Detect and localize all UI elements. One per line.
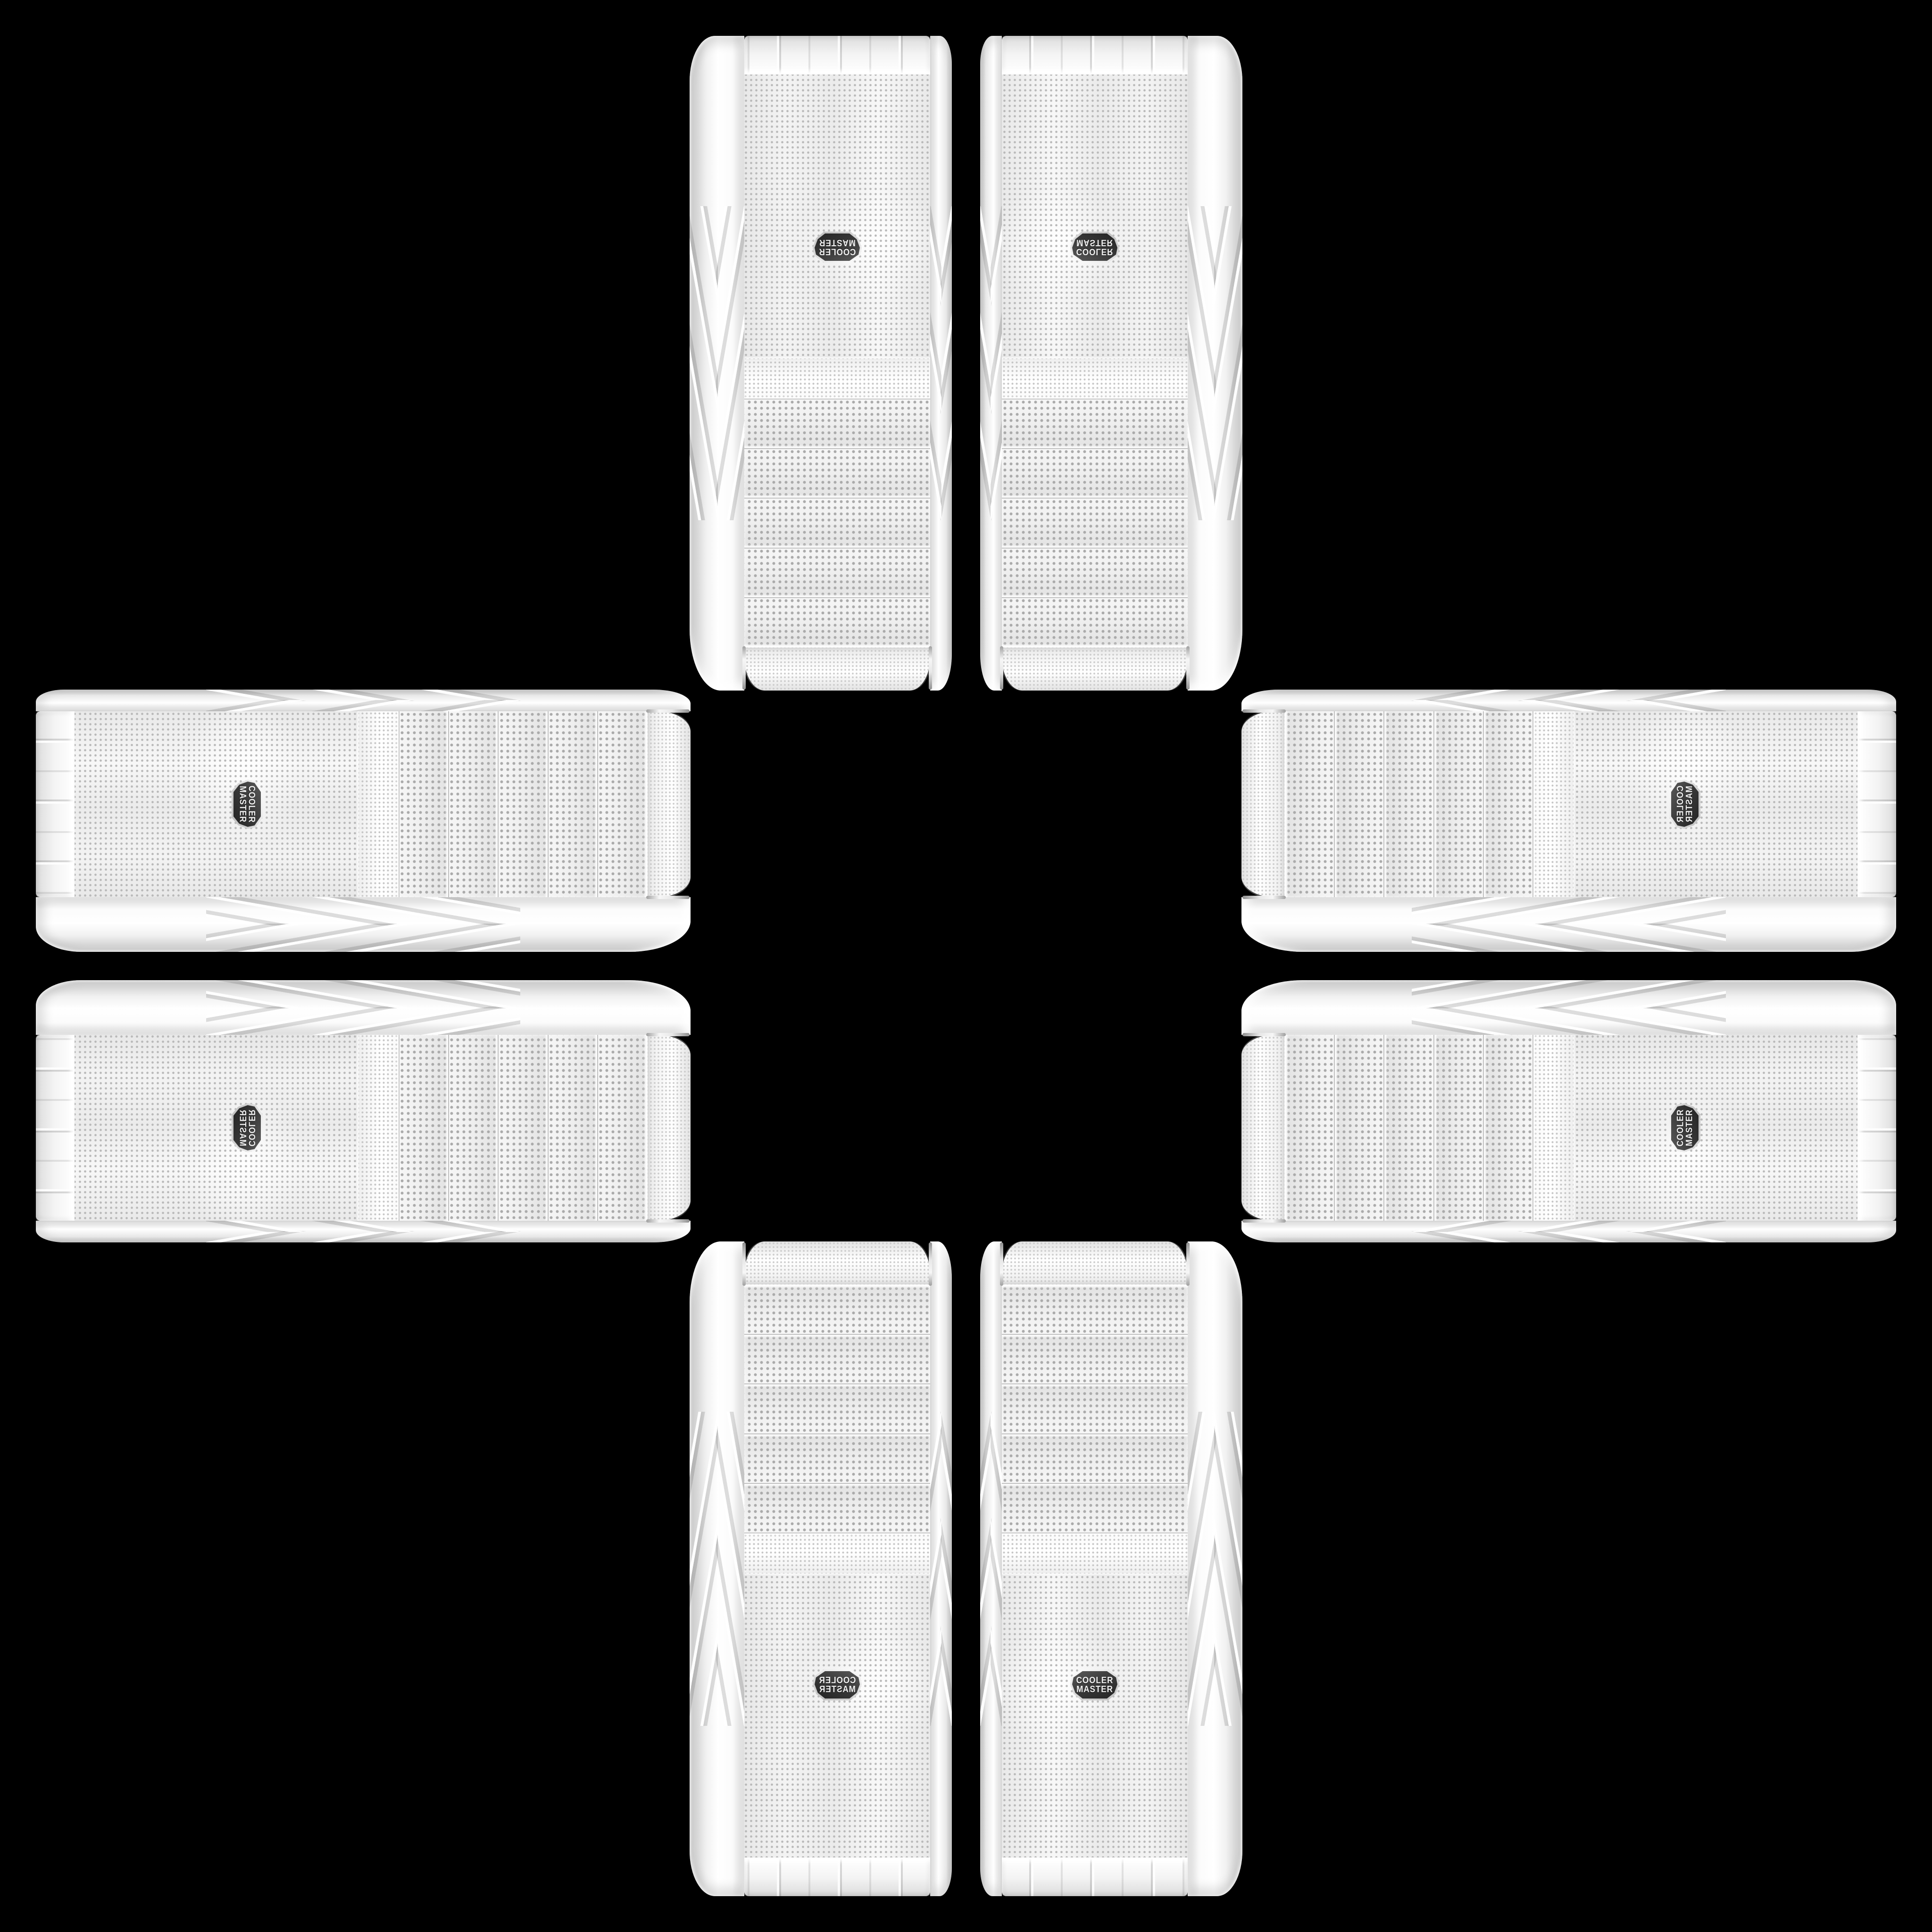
case-side-rail-narrow <box>36 1221 691 1242</box>
front-top-fine-mesh-band <box>1002 647 1188 691</box>
drive-bay-cover <box>1002 1334 1188 1383</box>
drive-bay-cover <box>1002 1285 1188 1334</box>
cooler-master-badge-icon: COOLER MASTER <box>233 1105 261 1150</box>
drive-bay-cover <box>744 449 930 499</box>
front-main-mesh: COOLER MASTER <box>1002 1574 1188 1857</box>
logo-text-master: MASTER <box>238 786 248 823</box>
case-side-rail-narrow <box>980 1241 1002 1896</box>
cooler-master-logo: COOLER MASTER <box>1070 1669 1119 1700</box>
drive-bay-mesh-covers <box>1285 1035 1532 1221</box>
rail-chevron-ribs <box>206 897 520 952</box>
cooler-master-badge-icon: COOLER MASTER <box>233 782 261 827</box>
logo-text-master: MASTER <box>1076 238 1113 248</box>
drive-bay-cover <box>744 400 930 449</box>
chrome-trim-right-icon <box>1242 1033 1286 1036</box>
drive-bay-cover <box>1483 1035 1532 1221</box>
case-body: COOLER MASTER <box>690 1241 952 1896</box>
case-side-rail-wide <box>1188 36 1242 691</box>
chrome-trim-right-icon <box>646 1033 690 1036</box>
drive-bay-cover <box>1002 499 1188 548</box>
front-top-fine-mesh-band <box>647 711 691 897</box>
chrome-trim-left-icon <box>646 1219 690 1223</box>
front-bottom-cap <box>1002 36 1188 75</box>
drive-bay-cover <box>449 711 499 897</box>
case-side-rail-narrow <box>1241 690 1896 711</box>
rail-chevron-ribs <box>1412 690 1726 711</box>
logo-text-cooler: COOLER <box>247 1109 257 1147</box>
rail-chevron-ribs <box>980 206 1002 520</box>
rail-chevron-ribs <box>930 206 952 520</box>
cooler-master-badge-icon: COOLER MASTER <box>815 233 860 261</box>
case-side-rail-wide <box>36 980 691 1035</box>
pc-case-bottom-right: COOLER MASTER <box>980 1241 1242 1896</box>
front-bottom-cap <box>744 1857 930 1896</box>
case-body: COOLER MASTER <box>690 36 952 691</box>
case-side-rail-wide <box>690 1241 744 1896</box>
cooler-master-badge-icon: COOLER MASTER <box>1072 1671 1117 1699</box>
chrome-trim-right-icon <box>1186 646 1190 690</box>
front-top-fine-mesh-band <box>647 1035 691 1221</box>
pc-case-right-upper: COOLER MASTER <box>1241 690 1896 952</box>
chrome-trim-left-icon <box>646 709 690 713</box>
drive-bay-cover <box>744 549 930 598</box>
drive-bay-mesh-covers <box>1285 711 1532 897</box>
front-bottom-cap <box>36 711 75 897</box>
cooler-master-badge-icon: COOLER MASTER <box>1671 782 1699 827</box>
front-top-fine-mesh-band <box>744 647 930 691</box>
front-main-mesh: COOLER MASTER <box>744 1574 930 1857</box>
pc-case-left-upper: COOLER MASTER <box>36 690 691 952</box>
logo-text-master: MASTER <box>1684 1109 1694 1146</box>
chrome-trim-right-icon <box>742 1242 746 1286</box>
case-front-panel: COOLER MASTER <box>36 711 691 897</box>
front-mid-mesh-band <box>1002 358 1188 400</box>
case-side-rail-narrow <box>930 36 952 691</box>
case-front-panel: COOLER MASTER <box>1241 1035 1896 1221</box>
front-top-fine-mesh-band <box>1002 1241 1188 1285</box>
logo-text-master: MASTER <box>238 1109 248 1146</box>
case-front-panel: COOLER MASTER <box>744 1241 930 1896</box>
rail-chevron-ribs <box>206 980 520 1035</box>
drive-bay-mesh-covers <box>1002 400 1188 647</box>
front-top-fine-mesh-band <box>744 1241 930 1285</box>
drive-bay-cover <box>1334 1035 1383 1221</box>
rail-chevron-ribs <box>1412 980 1726 1035</box>
chrome-trim-right-icon <box>1186 1242 1190 1286</box>
case-body: COOLER MASTER <box>36 690 691 952</box>
drive-bay-cover <box>1383 1035 1433 1221</box>
drive-bay-cover <box>1334 711 1383 897</box>
drive-bay-mesh-covers <box>1002 1285 1188 1532</box>
logo-text-master: MASTER <box>1076 1684 1113 1694</box>
case-front-panel: COOLER MASTER <box>36 1035 691 1221</box>
drive-bay-cover <box>598 711 647 897</box>
front-main-mesh: COOLER MASTER <box>75 711 358 897</box>
chrome-trim-left-icon <box>1000 1242 1003 1286</box>
drive-bay-cover <box>744 499 930 548</box>
drive-bay-cover <box>449 1035 499 1221</box>
front-mid-mesh-band <box>358 1035 400 1221</box>
case-side-rail-narrow <box>36 690 691 711</box>
case-front-panel: COOLER MASTER <box>1002 36 1188 691</box>
drive-bay-cover <box>400 1035 449 1221</box>
case-front-panel: COOLER MASTER <box>744 36 930 691</box>
front-bottom-cap <box>36 1035 75 1221</box>
logo-text-master: MASTER <box>1684 786 1694 823</box>
case-body: COOLER MASTER <box>980 36 1242 691</box>
drive-bay-cover <box>499 711 548 897</box>
cooler-master-logo: COOLER MASTER <box>1669 1103 1700 1152</box>
drive-bay-cover <box>744 1334 930 1383</box>
chrome-trim-right-icon <box>646 896 690 899</box>
front-main-mesh: COOLER MASTER <box>1574 711 1857 897</box>
drive-bay-cover <box>744 598 930 647</box>
drive-bay-cover <box>598 1035 647 1221</box>
cooler-master-logo: COOLER MASTER <box>232 780 263 829</box>
front-bottom-cap <box>1857 711 1896 897</box>
front-bottom-cap <box>1857 1035 1896 1221</box>
chrome-trim-left-icon <box>929 646 932 690</box>
pc-case-right-lower: COOLER MASTER <box>1241 980 1896 1242</box>
rail-chevron-ribs <box>1412 1221 1726 1242</box>
case-side-rail-narrow <box>980 36 1002 691</box>
case-body: COOLER MASTER <box>1241 690 1896 952</box>
drive-bay-cover <box>1285 1035 1334 1221</box>
case-side-rail-narrow <box>1241 1221 1896 1242</box>
logo-text-master: MASTER <box>819 238 856 248</box>
drive-bay-cover <box>1002 1433 1188 1483</box>
drive-bay-cover <box>744 1285 930 1334</box>
drive-bay-mesh-covers <box>400 711 647 897</box>
cooler-master-logo: COOLER MASTER <box>813 1669 862 1700</box>
case-side-rail-wide <box>690 36 744 691</box>
pc-case-top-right: COOLER MASTER <box>980 36 1242 691</box>
drive-bay-mesh-covers <box>400 1035 647 1221</box>
drive-bay-cover <box>1002 598 1188 647</box>
case-side-rail-wide <box>1241 980 1896 1035</box>
case-side-rail-wide <box>36 897 691 952</box>
logo-text-cooler: COOLER <box>819 247 856 257</box>
drive-bay-cover <box>1433 1035 1483 1221</box>
rail-chevron-ribs <box>690 206 744 520</box>
drive-bay-cover <box>744 1383 930 1433</box>
front-top-fine-mesh-band <box>1241 711 1285 897</box>
front-bottom-cap <box>1002 1857 1188 1896</box>
front-mid-mesh-band <box>1002 1532 1188 1574</box>
drive-bay-cover <box>400 711 449 897</box>
front-mid-mesh-band <box>1532 1035 1574 1221</box>
drive-bay-cover <box>1002 449 1188 499</box>
chrome-trim-left-icon <box>1242 709 1286 713</box>
front-main-mesh: COOLER MASTER <box>75 1035 358 1221</box>
chrome-trim-left-icon <box>929 1242 932 1286</box>
logo-text-cooler: COOLER <box>247 786 257 823</box>
chrome-trim-left-icon <box>1242 1219 1286 1223</box>
cooler-master-badge-icon: COOLER MASTER <box>815 1671 860 1699</box>
case-front-panel: COOLER MASTER <box>1002 1241 1188 1896</box>
front-main-mesh: COOLER MASTER <box>1002 75 1188 358</box>
case-body: COOLER MASTER <box>36 980 691 1242</box>
case-body: COOLER MASTER <box>1241 980 1896 1242</box>
case-side-rail-wide <box>1188 1241 1242 1896</box>
rail-chevron-ribs <box>1188 206 1242 520</box>
drive-bay-cover <box>499 1035 548 1221</box>
logo-text-cooler: COOLER <box>1076 247 1114 257</box>
case-front-panel: COOLER MASTER <box>1241 711 1896 897</box>
chrome-trim-right-icon <box>1242 896 1286 899</box>
rail-chevron-ribs <box>1188 1412 1242 1726</box>
front-mid-mesh-band <box>1532 711 1574 897</box>
pc-case-bottom-left: COOLER MASTER <box>690 1241 952 1896</box>
case-side-rail-wide <box>1241 897 1896 952</box>
rail-chevron-ribs <box>980 1412 1002 1726</box>
logo-text-master: MASTER <box>819 1684 856 1694</box>
front-top-fine-mesh-band <box>1241 1035 1285 1221</box>
chrome-trim-left-icon <box>1000 646 1003 690</box>
cooler-master-badge-icon: COOLER MASTER <box>1072 233 1117 261</box>
chrome-trim-right-icon <box>742 646 746 690</box>
drive-bay-mesh-covers <box>744 400 930 647</box>
pc-case-left-lower: COOLER MASTER <box>36 980 691 1242</box>
rail-chevron-ribs <box>690 1412 744 1726</box>
front-main-mesh: COOLER MASTER <box>744 75 930 358</box>
rail-chevron-ribs <box>206 690 520 711</box>
black-backdrop: COOLER MASTER <box>0 0 1932 1932</box>
drive-bay-cover <box>1002 1383 1188 1433</box>
front-mid-mesh-band <box>744 358 930 400</box>
case-body: COOLER MASTER <box>980 1241 1242 1896</box>
drive-bay-cover <box>744 1483 930 1532</box>
drive-bay-cover <box>1285 711 1334 897</box>
front-mid-mesh-band <box>744 1532 930 1574</box>
front-main-mesh: COOLER MASTER <box>1574 1035 1857 1221</box>
rail-chevron-ribs <box>1412 897 1726 952</box>
drive-bay-cover <box>1002 549 1188 598</box>
drive-bay-cover <box>1002 400 1188 449</box>
drive-bay-cover <box>1433 711 1483 897</box>
rail-chevron-ribs <box>930 1412 952 1726</box>
drive-bay-cover <box>1483 711 1532 897</box>
cooler-master-logo: COOLER MASTER <box>232 1103 263 1152</box>
rail-chevron-ribs <box>206 1221 520 1242</box>
cooler-master-badge-icon: COOLER MASTER <box>1671 1105 1699 1150</box>
pc-case-top-left: COOLER MASTER <box>690 36 952 691</box>
drive-bay-cover <box>1002 1483 1188 1532</box>
front-bottom-cap <box>744 36 930 75</box>
drive-bay-cover <box>1383 711 1433 897</box>
cooler-master-logo: COOLER MASTER <box>813 232 862 263</box>
drive-bay-cover <box>549 1035 598 1221</box>
drive-bay-mesh-covers <box>744 1285 930 1532</box>
drive-bay-cover <box>744 1433 930 1483</box>
drive-bay-cover <box>549 711 598 897</box>
cooler-master-logo: COOLER MASTER <box>1669 780 1700 829</box>
case-side-rail-narrow <box>930 1241 952 1896</box>
cooler-master-logo: COOLER MASTER <box>1070 232 1119 263</box>
front-mid-mesh-band <box>358 711 400 897</box>
